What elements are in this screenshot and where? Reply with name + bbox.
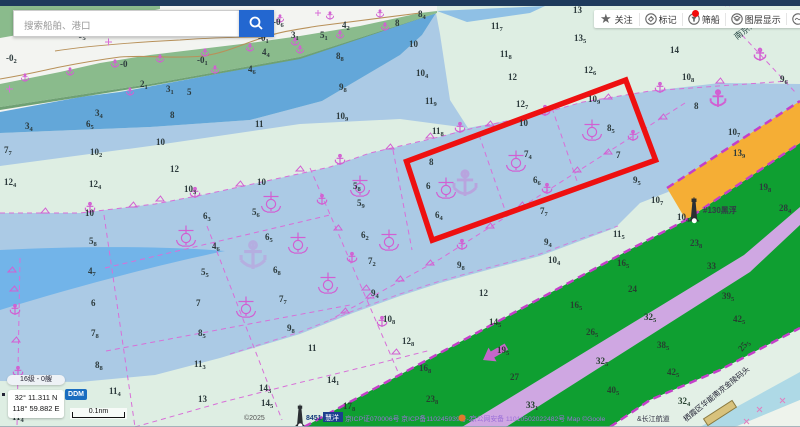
svg-text:慧洋: 慧洋 <box>325 413 339 422</box>
svg-text:10: 10 <box>156 137 166 147</box>
svg-text:24: 24 <box>628 284 638 294</box>
svg-text:6: 6 <box>426 181 431 191</box>
svg-text:13: 13 <box>573 5 583 15</box>
svg-text:京公网安备 11010502022482号 Map ©G: 京公网安备 11010502022482号 Map ©Goole <box>470 414 605 423</box>
svg-text:11: 11 <box>255 119 264 129</box>
svg-text:&长江航道: &长江航道 <box>637 414 670 423</box>
svg-text:8: 8 <box>395 18 400 28</box>
svg-text:10: 10 <box>85 208 95 218</box>
svg-text:13: 13 <box>198 394 208 404</box>
svg-text:27: 27 <box>510 372 520 382</box>
svg-text:33: 33 <box>707 261 717 271</box>
svg-text:12: 12 <box>479 288 489 298</box>
svg-text:14: 14 <box>670 45 680 55</box>
svg-text:7: 7 <box>196 298 201 308</box>
svg-text:5: 5 <box>187 87 192 97</box>
svg-text:8: 8 <box>694 101 699 111</box>
svg-text:#130黑浮: #130黑浮 <box>703 205 737 215</box>
svg-text:6: 6 <box>91 298 96 308</box>
svg-text:12: 12 <box>170 164 180 174</box>
svg-text:8: 8 <box>429 157 434 167</box>
svg-text:7: 7 <box>616 150 621 160</box>
svg-text:8: 8 <box>170 110 175 120</box>
svg-text:©2025: ©2025 <box>244 414 265 422</box>
svg-text:-0: -0 <box>120 59 128 69</box>
svg-text:8451: 8451 <box>306 415 322 422</box>
svg-text:10: 10 <box>519 118 529 128</box>
svg-text:12: 12 <box>508 72 518 82</box>
svg-text:京ICP证070006号 京ICP备110245939号-: 京ICP证070006号 京ICP备110245939号-2 <box>345 414 473 423</box>
svg-text:10: 10 <box>257 177 267 187</box>
svg-text:11: 11 <box>308 343 317 353</box>
svg-text:10: 10 <box>409 39 419 49</box>
